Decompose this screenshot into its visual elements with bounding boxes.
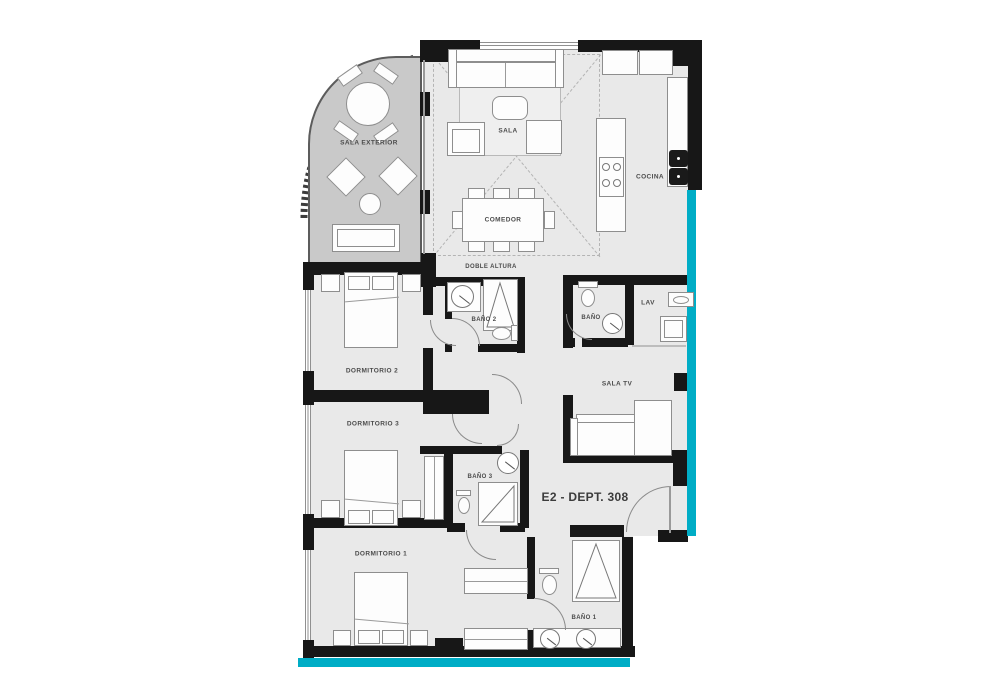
terrace-table bbox=[346, 82, 390, 126]
terrace-bench bbox=[332, 224, 400, 252]
wall bbox=[674, 373, 687, 391]
wall bbox=[517, 277, 525, 353]
armchair-seat bbox=[452, 129, 480, 153]
sofa-cushion-line bbox=[505, 63, 506, 87]
sofa-arm bbox=[555, 49, 564, 88]
laundry-sink bbox=[668, 292, 694, 307]
bed-fold-line bbox=[345, 297, 399, 303]
room-label-bano-2: BAÑO 2 bbox=[471, 317, 496, 323]
wall bbox=[688, 40, 702, 190]
sink-tap-icon bbox=[583, 638, 592, 645]
wardrobe-line bbox=[465, 581, 527, 582]
bed-fold-line bbox=[355, 619, 409, 625]
tv-sofa-arm bbox=[570, 418, 578, 456]
sink-icon bbox=[602, 313, 623, 334]
wardrobe-line bbox=[434, 457, 435, 519]
window bbox=[305, 405, 311, 514]
pillow bbox=[348, 276, 370, 290]
window bbox=[305, 550, 311, 640]
wardrobe-line bbox=[465, 639, 527, 640]
toilet-tank bbox=[511, 325, 518, 341]
kitchen-fridge bbox=[639, 50, 673, 75]
wardrobe bbox=[464, 568, 528, 594]
toilet-icon bbox=[458, 497, 470, 514]
wall bbox=[570, 525, 624, 537]
room-label-cocina: COCINA bbox=[636, 174, 664, 181]
bed bbox=[344, 450, 398, 526]
kitchen-cabinet bbox=[602, 50, 638, 75]
window bbox=[305, 290, 311, 371]
wall bbox=[625, 275, 634, 345]
dining-chair bbox=[544, 211, 555, 229]
sink-icon bbox=[497, 452, 519, 474]
floor-plan: SALA EXTERIOR SALA COMEDOR COCINA DOBLE … bbox=[0, 0, 1000, 700]
pillow bbox=[372, 510, 394, 524]
sink-tap-icon bbox=[610, 322, 620, 330]
pillow bbox=[358, 630, 380, 644]
pillow bbox=[372, 276, 394, 290]
stove-burner-icon bbox=[613, 179, 621, 187]
armchair bbox=[447, 122, 485, 156]
wall bbox=[634, 275, 688, 285]
kitchen-sink-icon bbox=[669, 168, 688, 185]
laundry-sink-basin bbox=[673, 296, 689, 304]
wardrobe bbox=[464, 628, 528, 650]
coffee-table bbox=[492, 96, 528, 120]
room-label-sala: SALA bbox=[498, 128, 517, 135]
wall bbox=[420, 446, 450, 454]
sink-tap-icon bbox=[505, 462, 515, 470]
stove-burner-icon bbox=[602, 163, 610, 171]
sofa-back bbox=[455, 49, 557, 62]
room-label-sala-exterior: SALA EXTERIOR bbox=[340, 140, 398, 147]
sink-tap-icon bbox=[459, 295, 470, 304]
wall bbox=[303, 262, 314, 290]
shower-icon bbox=[480, 484, 516, 524]
nightstand bbox=[410, 630, 428, 646]
room-label-bano: BAÑO bbox=[581, 315, 600, 321]
washer-inner bbox=[664, 320, 683, 338]
kitchen-sink-icon bbox=[669, 150, 688, 167]
accent-strip-bottom bbox=[298, 658, 630, 667]
wall bbox=[622, 537, 633, 655]
room-label-bano-1: BAÑO 1 bbox=[571, 615, 596, 621]
sofa-seat bbox=[455, 62, 557, 88]
room-label-lav: LAV bbox=[641, 300, 655, 307]
wall bbox=[423, 348, 433, 392]
sink-icon bbox=[576, 629, 596, 649]
bed bbox=[354, 572, 408, 646]
room-label-dormitorio-2: DORMITORIO 2 bbox=[346, 368, 398, 375]
sink-icon bbox=[451, 285, 474, 308]
side-chair bbox=[526, 120, 562, 154]
wall bbox=[420, 190, 430, 214]
toilet-icon bbox=[492, 327, 511, 340]
wall bbox=[303, 390, 425, 402]
nightstand bbox=[333, 630, 351, 646]
sink-tap-icon bbox=[547, 638, 556, 645]
wall bbox=[447, 446, 502, 454]
wall bbox=[444, 450, 453, 526]
wall bbox=[423, 390, 489, 414]
wall bbox=[423, 287, 433, 315]
wall bbox=[570, 338, 575, 347]
room-label-doble-altura: DOBLE ALTURA bbox=[465, 264, 516, 270]
threshold bbox=[632, 345, 686, 347]
wardrobe bbox=[424, 456, 444, 520]
stove-burner-icon bbox=[613, 163, 621, 171]
wall bbox=[527, 537, 535, 599]
bed bbox=[344, 272, 398, 348]
wall bbox=[478, 344, 521, 352]
toilet-icon bbox=[581, 289, 595, 307]
room-label-dormitorio-1: DORMITORIO 1 bbox=[355, 551, 407, 558]
room-label-comedor: COMEDOR bbox=[485, 217, 522, 224]
toilet-tank bbox=[578, 281, 598, 288]
room-label-sala-tv: SALA TV bbox=[602, 381, 632, 388]
pillow bbox=[348, 510, 370, 524]
unit-label: E2 - DEPT. 308 bbox=[542, 490, 629, 504]
door-leaf bbox=[669, 486, 671, 533]
pillow bbox=[382, 630, 404, 644]
nightstand bbox=[402, 274, 421, 292]
nightstand bbox=[402, 500, 421, 518]
nightstand bbox=[321, 274, 340, 292]
bed-fold-line bbox=[345, 499, 399, 505]
sofa-arm bbox=[448, 49, 457, 88]
terrace-side-table bbox=[359, 193, 381, 215]
accent-strip-right bbox=[687, 190, 696, 536]
terrace-bench-inner bbox=[337, 229, 395, 247]
glass-wall bbox=[423, 60, 425, 254]
toilet-tank bbox=[456, 490, 471, 496]
toilet-tank bbox=[539, 568, 559, 574]
wall bbox=[520, 450, 529, 528]
toilet-icon bbox=[542, 575, 557, 595]
wall bbox=[420, 92, 430, 116]
nightstand bbox=[321, 500, 340, 518]
tv-sofa-seat bbox=[576, 422, 636, 456]
room-label-dormitorio-3: DORMITORIO 3 bbox=[347, 421, 399, 428]
tv-sofa-chaise bbox=[634, 400, 672, 456]
stove-burner-icon bbox=[602, 179, 610, 187]
shower-icon bbox=[574, 542, 618, 600]
washer bbox=[660, 316, 687, 342]
room-label-bano-3: BAÑO 3 bbox=[467, 474, 492, 480]
sink-icon bbox=[540, 629, 560, 649]
